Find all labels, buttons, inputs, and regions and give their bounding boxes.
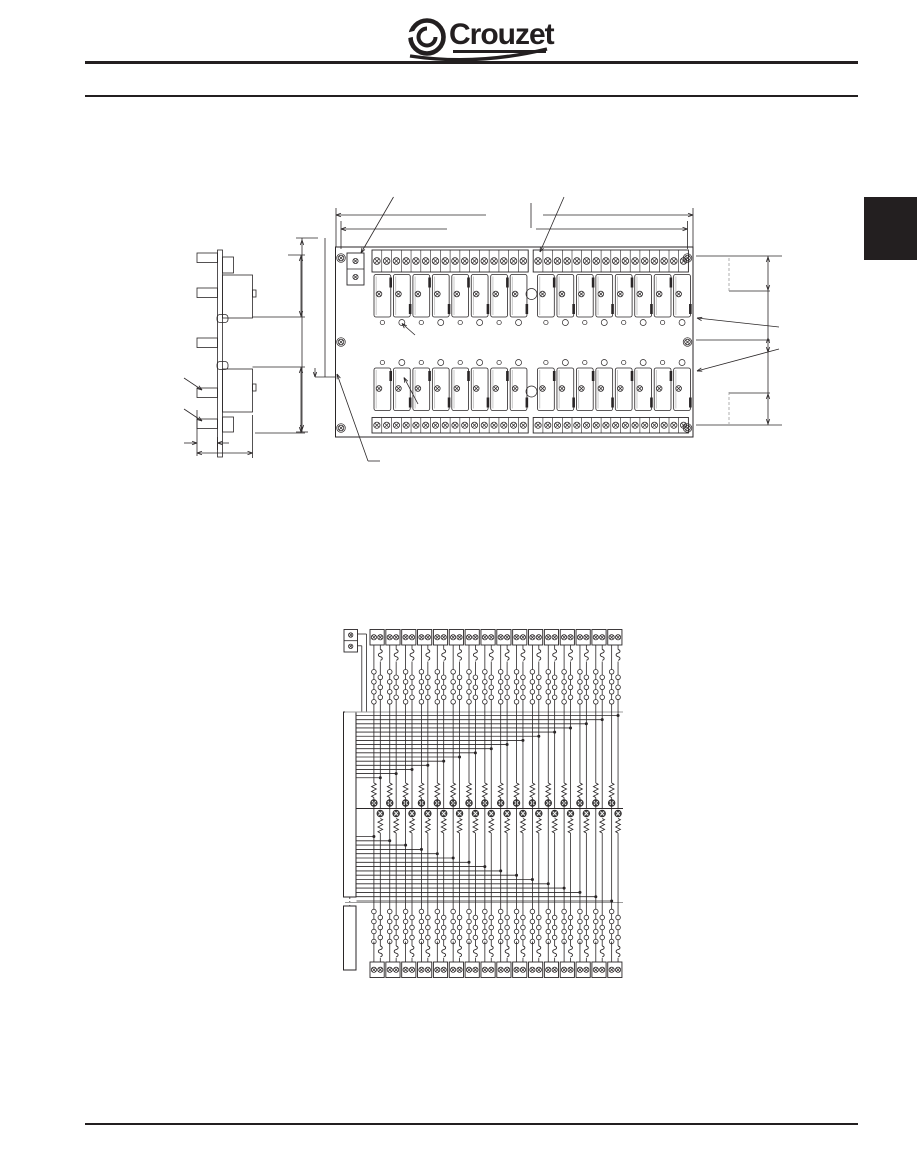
brand-wordmark: Crouzet	[449, 18, 554, 52]
footer-rule	[85, 1123, 858, 1125]
terminal-strip-top	[372, 250, 688, 272]
mechanical-drawing-figure	[170, 190, 810, 475]
aux-terminal-block	[344, 630, 367, 713]
terminal-strip-bottom	[372, 418, 688, 434]
connectors	[344, 712, 357, 970]
top-view	[296, 197, 782, 461]
side-view	[184, 250, 305, 458]
aux-terminal-block	[347, 253, 364, 285]
section-tab	[864, 197, 917, 260]
top-dimensions	[336, 203, 693, 249]
channels	[370, 630, 622, 978]
header-rule-top	[85, 61, 858, 64]
wiring-schematic-figure	[330, 615, 642, 990]
relay-row-2	[374, 360, 692, 411]
header-rule-bottom	[85, 95, 858, 97]
datasheet-page: Crouzet	[0, 0, 918, 1175]
relay-row-1	[374, 275, 692, 326]
right-dimensions	[696, 256, 782, 425]
brand-underline	[453, 50, 546, 53]
